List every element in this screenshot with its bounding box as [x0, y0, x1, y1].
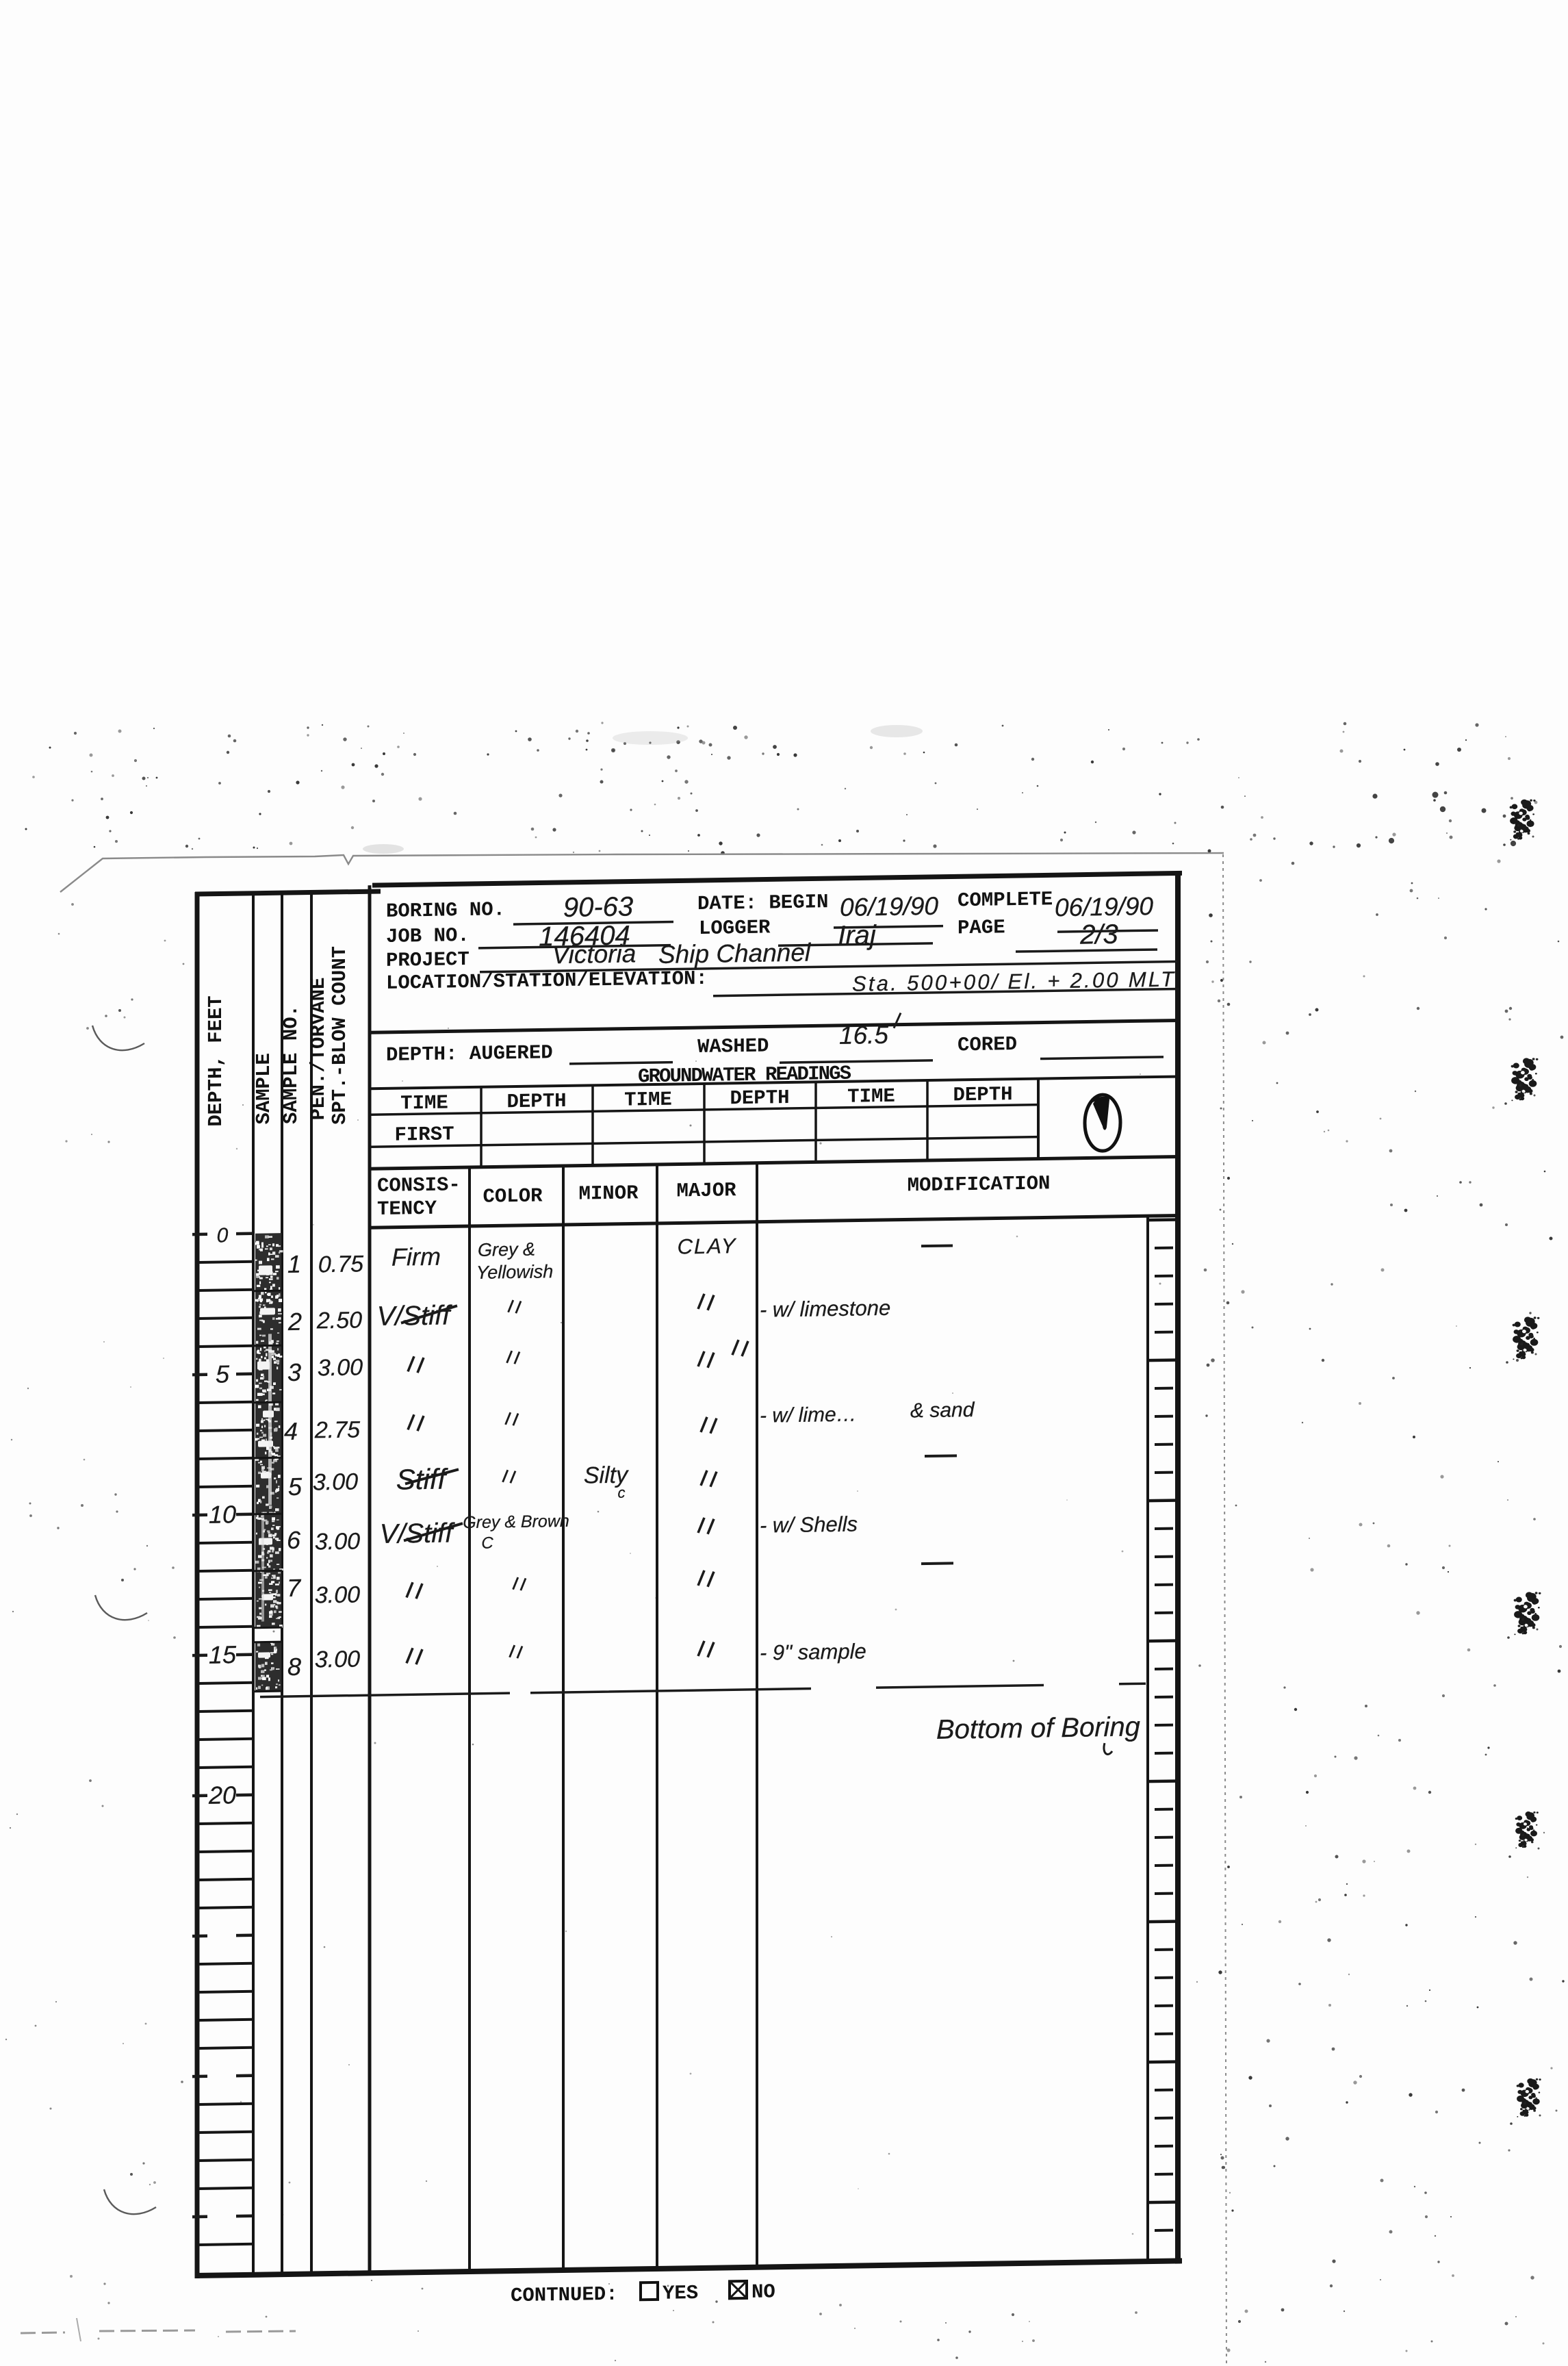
svg-text:06/19/90: 06/19/90 [840, 892, 938, 921]
svg-text:WASHED: WASHED [697, 1034, 769, 1058]
svg-text:Firm: Firm [391, 1243, 441, 1271]
svg-text:15: 15 [209, 1640, 237, 1669]
svg-text:PAGE: PAGE [957, 916, 1005, 939]
svg-text:Grey &: Grey & [478, 1239, 535, 1260]
svg-text:4: 4 [284, 1417, 298, 1445]
svg-text:5: 5 [288, 1473, 303, 1501]
svg-text:2/3: 2/3 [1079, 919, 1118, 950]
svg-text:TIME: TIME [624, 1089, 672, 1112]
svg-text:3.00: 3.00 [315, 1646, 360, 1672]
svg-text:COLOR: COLOR [483, 1184, 543, 1208]
svg-text:3: 3 [287, 1358, 301, 1386]
svg-text:Bottom of Boring: Bottom of Boring [936, 1712, 1140, 1744]
svg-text:BORING NO.: BORING NO. [386, 898, 505, 923]
svg-text:& sand: & sand [910, 1399, 975, 1422]
svg-text:MINOR: MINOR [578, 1182, 639, 1205]
svg-text:1: 1 [287, 1250, 301, 1278]
svg-text:Yellowish: Yellowish [476, 1261, 554, 1283]
svg-text:3.00: 3.00 [318, 1354, 363, 1381]
svg-text:8: 8 [287, 1653, 301, 1681]
svg-text:SAMPLE: SAMPLE [253, 1053, 275, 1125]
svg-text:2.50: 2.50 [316, 1307, 362, 1334]
svg-text:TIME: TIME [847, 1085, 895, 1108]
svg-text:3.00: 3.00 [313, 1468, 358, 1495]
svg-text:- w/ limestone: - w/ limestone [760, 1296, 890, 1322]
svg-text:JOB NO.: JOB NO. [386, 924, 470, 948]
svg-text:MAJOR: MAJOR [676, 1179, 736, 1202]
svg-text:TENCY: TENCY [377, 1197, 437, 1221]
svg-text:CLAY: CLAY [678, 1234, 737, 1258]
svg-text:2: 2 [287, 1308, 302, 1336]
svg-text:5: 5 [216, 1360, 230, 1388]
svg-text:PROJECT: PROJECT [386, 948, 470, 972]
svg-text:DEPTH, FEET: DEPTH, FEET [205, 995, 227, 1127]
svg-text:DEPTH: DEPTH [953, 1083, 1012, 1106]
svg-text:2.75: 2.75 [314, 1416, 360, 1443]
svg-text:V/Stiff: V/Stiff [380, 1518, 456, 1549]
svg-text:LOCATION/STATION/ELEVATION:: LOCATION/STATION/ELEVATION: [386, 967, 708, 995]
svg-text:90-63: 90-63 [563, 891, 633, 923]
svg-text:Victoria: Victoria [552, 939, 637, 969]
svg-text:Grey & Brown: Grey & Brown [463, 1512, 569, 1532]
svg-text:Ship Channel: Ship Channel [658, 939, 812, 969]
svg-text:SAMPLE NO.: SAMPLE NO. [280, 1005, 303, 1125]
svg-text:CORED: CORED [957, 1033, 1017, 1056]
svg-text:DEPTH: DEPTH [506, 1090, 566, 1113]
svg-text:TIME: TIME [400, 1091, 448, 1115]
svg-text:- 9" sample: - 9" sample [760, 1639, 866, 1664]
svg-text:CONTNUED:: CONTNUED: [511, 2283, 618, 2307]
svg-text:- w/ Shells: - w/ Shells [760, 1512, 858, 1538]
svg-text:20: 20 [208, 1781, 236, 1809]
svg-text:10: 10 [209, 1500, 236, 1529]
svg-text:DEPTH: DEPTH [730, 1086, 789, 1110]
svg-text:7: 7 [287, 1574, 302, 1602]
svg-text:3.00: 3.00 [315, 1528, 360, 1555]
svg-text:GROUNDWATER READINGS: GROUNDWATER READINGS [638, 1063, 851, 1089]
svg-text:6: 6 [287, 1526, 301, 1554]
svg-text:Iraj: Iraj [838, 920, 877, 951]
svg-text:c: c [618, 1484, 626, 1501]
svg-text:COMPLETE: COMPLETE [957, 888, 1053, 912]
svg-text:0.75: 0.75 [318, 1251, 363, 1277]
svg-text:MODIFICATION: MODIFICATION [908, 1172, 1051, 1197]
svg-text:0: 0 [217, 1224, 229, 1247]
svg-text:FIRST: FIRST [394, 1123, 454, 1146]
svg-text:DEPTH: AUGERED: DEPTH: AUGERED [386, 1041, 553, 1067]
svg-text:PEN./TORVANE: PEN./TORVANE [307, 977, 330, 1120]
svg-text:V/Stiff: V/Stiff [377, 1300, 453, 1332]
svg-text:LOGGER: LOGGER [699, 916, 771, 940]
svg-text:DATE: BEGIN: DATE: BEGIN [697, 891, 828, 915]
svg-text:SPT.-BLOW COUNT: SPT.-BLOW COUNT [329, 946, 351, 1125]
svg-text:YES: YES [663, 2282, 698, 2305]
svg-text:C: C [481, 1534, 493, 1553]
svg-text:06/19/90: 06/19/90 [1055, 892, 1153, 921]
svg-text:3.00: 3.00 [315, 1581, 360, 1608]
svg-text:16.5: 16.5 [839, 1021, 888, 1050]
svg-text:NO: NO [751, 2280, 775, 2304]
svg-text:- w/ lime…: - w/ lime… [760, 1403, 857, 1427]
svg-text:CONSIS-: CONSIS- [377, 1173, 461, 1197]
